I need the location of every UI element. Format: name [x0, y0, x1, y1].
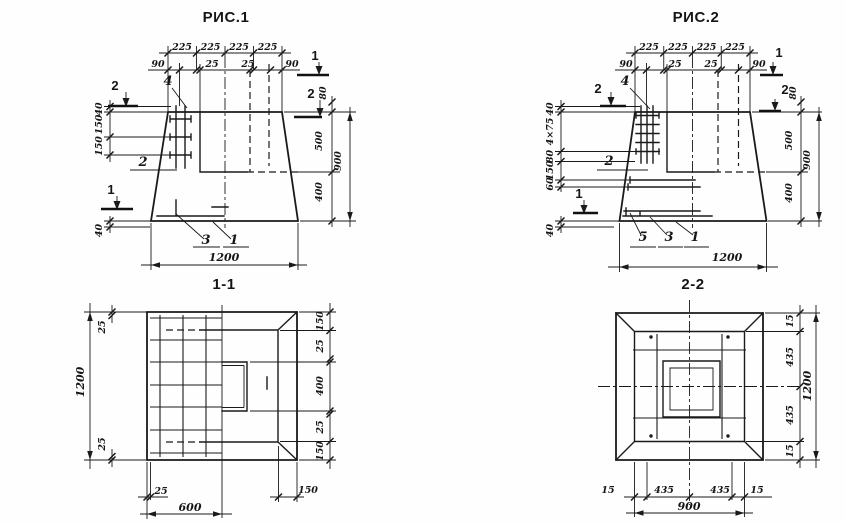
- fig2-dim-top-3: 225: [696, 42, 717, 53]
- fig1-dim-1200: 1200: [209, 251, 240, 264]
- fig2-dim-left-bottom: 40: [545, 224, 556, 238]
- fig2-dim-400: 400: [784, 183, 795, 203]
- fig2-dim-left-1: 40: [545, 102, 556, 116]
- s22-dim-right-2: 435: [785, 347, 796, 367]
- fig1-dim-left-bottom: 40: [94, 224, 105, 238]
- s22-dim-right-1: 15: [785, 314, 796, 328]
- fig1-marker-1-right: 1: [311, 48, 318, 63]
- fig2-dim-80: 80: [788, 86, 799, 100]
- s11-dim-right-1: 150: [315, 311, 326, 331]
- fig2-dim-sub-1: 90: [619, 59, 633, 70]
- s22-dim-bottom-1: 15: [601, 485, 615, 496]
- s22-dim-bottom-4: 15: [750, 485, 764, 496]
- fig2-dim-sub-4: 90: [752, 59, 766, 70]
- fig1-dim-sub-2: 25: [204, 59, 219, 70]
- fig1-dim-sub-4: 90: [285, 59, 299, 70]
- drawing-sheet: РИС.1 225 225 225 225 90 25 25 90 40 150…: [0, 0, 845, 524]
- s22-dim-bottom-2: 435: [654, 485, 674, 496]
- fig1-marker-2-right: 2: [307, 86, 314, 101]
- fig2-dim-1200: 1200: [712, 251, 743, 264]
- fig2-dim-top-4: 225: [724, 42, 745, 53]
- s11-dim-bottom-600: 600: [179, 501, 202, 514]
- fig1-dim-500: 500: [314, 131, 325, 151]
- fig2-dim-500: 500: [784, 130, 795, 150]
- fig1-callout-2: 2: [137, 155, 147, 170]
- fig1-dim-sub-1: 90: [151, 59, 165, 70]
- fig2-marker-1-left: 1: [575, 186, 582, 201]
- fig1-dim-900: 900: [333, 151, 344, 171]
- s11-dim-25-bottom: 25: [97, 437, 108, 452]
- s22-dim-right-4: 15: [785, 444, 796, 458]
- s11-dim-right-3: 400: [315, 376, 326, 396]
- fig2-callout-5: 5: [638, 230, 647, 245]
- fig2-dim-left-2: 4×75: [545, 117, 556, 145]
- fig1-dim-left-1: 40: [94, 102, 105, 116]
- fig1-callout-4: 4: [163, 74, 172, 89]
- fig2-dim-top-2: 225: [667, 42, 688, 53]
- s11-dim-right-4: 25: [315, 420, 326, 435]
- fig2-callout-4: 4: [620, 74, 629, 89]
- fig1-callout-3: 3: [201, 233, 210, 248]
- fig2-dim-900: 900: [802, 150, 813, 170]
- s11-dim-1200: 1200: [74, 366, 87, 397]
- fig1-dim-top-4: 225: [257, 42, 278, 53]
- fig2-dim-left-5: 60: [545, 177, 556, 191]
- fig2-elevation: РИС.2 225 225 225 225 90 25 25 90 40 4×7…: [545, 9, 822, 272]
- s11-dim-right-5: 150: [315, 441, 326, 461]
- s11-dim-bottom-25: 25: [153, 486, 168, 497]
- fig1-dim-80: 80: [318, 86, 329, 100]
- section-2-2-plan: 2-2 15 435 435 15 1200 15 435 435 15 900: [598, 276, 820, 517]
- s22-dim-1200: 1200: [801, 370, 814, 401]
- s22-dim-bottom-3: 435: [710, 485, 730, 496]
- section-2-2-title: 2-2: [681, 276, 704, 293]
- fig1-marker-2-left: 2: [111, 78, 118, 93]
- s11-dim-bottom-150: 150: [298, 485, 318, 496]
- fig1-dim-left-2: 150: [94, 114, 105, 134]
- fig2-dim-sub-3: 25: [703, 59, 718, 70]
- fig1-title: РИС.1: [203, 9, 250, 26]
- fig2-marker-2-right: 2: [781, 82, 788, 97]
- fig2-dim-sub-2: 25: [667, 59, 682, 70]
- fig2-title: РИС.2: [673, 9, 720, 26]
- s11-dim-25-top: 25: [97, 320, 108, 335]
- section-1-1-title: 1-1: [212, 276, 235, 293]
- fig2-dim-top-1: 225: [638, 42, 659, 53]
- fig2-linework: [555, 46, 822, 272]
- fig2-callout-3: 3: [664, 230, 673, 245]
- fig1-marker-1-left: 1: [107, 182, 114, 197]
- fig1-dim-top-1: 225: [171, 42, 192, 53]
- fig1-elevation: РИС.1 225 225 225 225 90 25 25 90 40 150…: [94, 9, 356, 270]
- fig1-dim-sub-3: 25: [240, 59, 255, 70]
- fig2-marker-1-right: 1: [775, 45, 782, 60]
- s11-dim-right-2: 25: [315, 339, 326, 354]
- s22-dim-right-3: 435: [785, 405, 796, 425]
- fig2-callout-1: 1: [690, 230, 699, 245]
- fig2-marker-2-left: 2: [594, 81, 601, 96]
- foundation-drawing-canvas: РИС.1 225 225 225 225 90 25 25 90 40 150…: [0, 0, 845, 524]
- fig1-dim-top-2: 225: [200, 42, 221, 53]
- section-1-1-plan: 1-1 1200 25 25 150 25 400 25 150 25 600 …: [74, 276, 336, 519]
- s22-dim-900: 900: [678, 500, 701, 513]
- fig1-dim-left-3: 150: [94, 136, 105, 156]
- fig1-callout-1: 1: [229, 233, 238, 248]
- fig2-callout-2: 2: [603, 154, 613, 169]
- fig1-dim-400: 400: [314, 182, 325, 202]
- fig1-dim-top-3: 225: [228, 42, 249, 53]
